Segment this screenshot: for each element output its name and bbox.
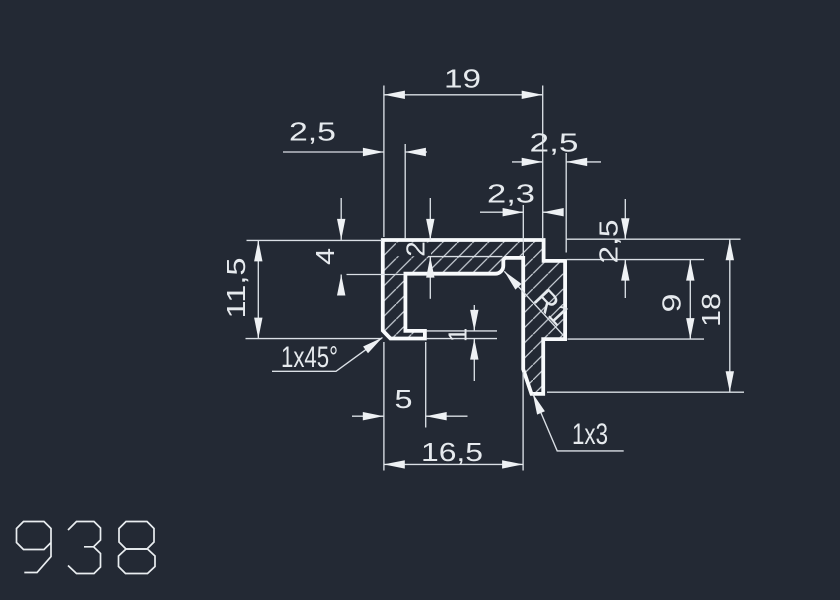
svg-text:2,3: 2,3 — [487, 179, 535, 209]
svg-text:19: 19 — [444, 64, 481, 94]
svg-text:2,5: 2,5 — [289, 117, 336, 147]
svg-text:1: 1 — [442, 328, 472, 342]
svg-text:16,5: 16,5 — [421, 437, 483, 467]
svg-text:2,5: 2,5 — [594, 220, 624, 264]
svg-text:1x45°: 1x45° — [281, 341, 338, 374]
svg-text:2: 2 — [401, 241, 431, 257]
svg-text:11,5: 11,5 — [221, 258, 251, 319]
svg-text:2,5: 2,5 — [530, 128, 579, 158]
svg-text:5: 5 — [395, 384, 413, 414]
svg-text:9: 9 — [657, 294, 687, 313]
svg-text:1x3: 1x3 — [572, 418, 608, 451]
svg-text:4: 4 — [310, 248, 340, 265]
svg-text:18: 18 — [696, 293, 726, 327]
